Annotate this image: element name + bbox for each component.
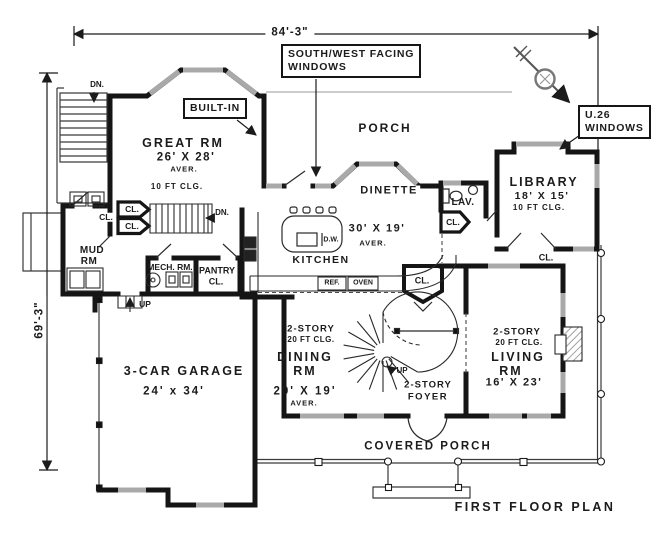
living-ceiling: 20 FT CLG. — [495, 339, 542, 347]
callout-southwest-windows: SOUTH/WEST FACING WINDOWS — [281, 44, 421, 78]
dining-aver: AVER. — [290, 399, 317, 407]
stairs-down-label: DN. — [215, 209, 229, 217]
spiral-stair — [344, 292, 458, 392]
callout-u26-line2: WINDOWS — [585, 122, 644, 135]
dining-room-label: DINING — [277, 351, 333, 364]
mechanical-room-label: MECH. RM. — [147, 263, 192, 272]
callout-built-in: BUILT-IN — [183, 98, 247, 119]
library-label: LIBRARY — [509, 176, 578, 189]
living-room-label: LIVING — [491, 351, 545, 364]
dishwasher-label: D.W. — [323, 237, 338, 244]
lav-label: LAV. — [451, 198, 474, 208]
deck-stairs-down-label: DN. — [90, 81, 104, 89]
mudroom-sink-icon — [67, 268, 103, 291]
fireplace-icon — [555, 327, 582, 361]
kitchen-label: KITCHEN — [292, 255, 349, 266]
library-closet-label: CL. — [539, 254, 554, 263]
dimension-height-label: 69'-3" — [34, 295, 46, 344]
great-room-aver: AVER. — [170, 165, 197, 173]
pantry-label-1: PANTRY — [199, 267, 235, 276]
closet-label-stair-bottom: CL. — [124, 222, 140, 231]
pantry-label-2: CL. — [209, 278, 224, 287]
foyer-label: FOYER — [408, 392, 448, 402]
porch-label: PORCH — [358, 122, 411, 134]
living-room-label-rm: RM — [499, 365, 522, 378]
dinette-label: DINETTE — [358, 186, 420, 197]
dining-room-label-rm: RM — [293, 365, 316, 378]
garage-size: 24' x 34' — [143, 386, 205, 398]
kitchen-closet-label: CL. — [415, 277, 430, 286]
refrigerator-label: REF. — [324, 280, 339, 287]
closet-label-hall: CL. — [98, 213, 114, 222]
foyer-two-story: 2-STORY — [404, 380, 452, 390]
dining-two-story: 2-STORY — [287, 324, 335, 334]
north-arrow-icon — [514, 46, 569, 102]
dimension-lines — [39, 26, 598, 470]
living-room-size: 16' X 23' — [486, 378, 543, 389]
callout-u26-line1: U.26 — [585, 109, 644, 122]
great-room-size: 26' X 28' — [157, 152, 216, 164]
mud-room-label-1: MUD — [80, 246, 104, 256]
living-two-story: 2-STORY — [493, 327, 541, 337]
garage-label: 3-CAR GARAGE — [124, 365, 245, 378]
dining-room-size: 20' X 19' — [273, 386, 336, 398]
great-room-ceiling: 10 FT CLG. — [151, 183, 203, 191]
dimension-width-label: 84'-3" — [265, 27, 314, 39]
callout-southwest-line1: SOUTH/WEST FACING — [288, 48, 414, 61]
callout-u26-windows: U.26 WINDOWS — [578, 105, 651, 139]
first-floor-plan: 84'-3" 69'-3" SOUTH/WEST FACING WINDOWS … — [0, 0, 660, 533]
main-stairs — [150, 204, 213, 233]
oven-label: OVEN — [353, 280, 373, 287]
foyer-beam — [395, 329, 459, 334]
garage-up-label: UP — [139, 300, 151, 309]
kitchen-island — [282, 207, 342, 252]
great-room-label: GREAT RM — [142, 137, 224, 150]
library-size: 18' X 15' — [515, 191, 570, 202]
dining-ceiling: 20 FT CLG. — [287, 336, 334, 344]
mud-room-label-2: RM — [81, 257, 98, 267]
mechanical-equipment-icons — [146, 272, 192, 287]
lav-sink-icon — [467, 185, 479, 195]
closet-label-stair-top: CL. — [124, 205, 140, 214]
callout-southwest-line2: WINDOWS — [288, 61, 414, 74]
kitchen-aver: AVER. — [359, 239, 386, 247]
library-ceiling: 10 FT CLG. — [513, 204, 565, 212]
kitchen-size: 30' X 19' — [349, 224, 406, 235]
lav-closet-label: CL. — [446, 218, 460, 227]
spiral-up-label: UP — [396, 367, 407, 375]
plan-title: FIRST FLOOR PLAN — [455, 501, 616, 514]
covered-porch-label: COVERED PORCH — [364, 441, 492, 453]
